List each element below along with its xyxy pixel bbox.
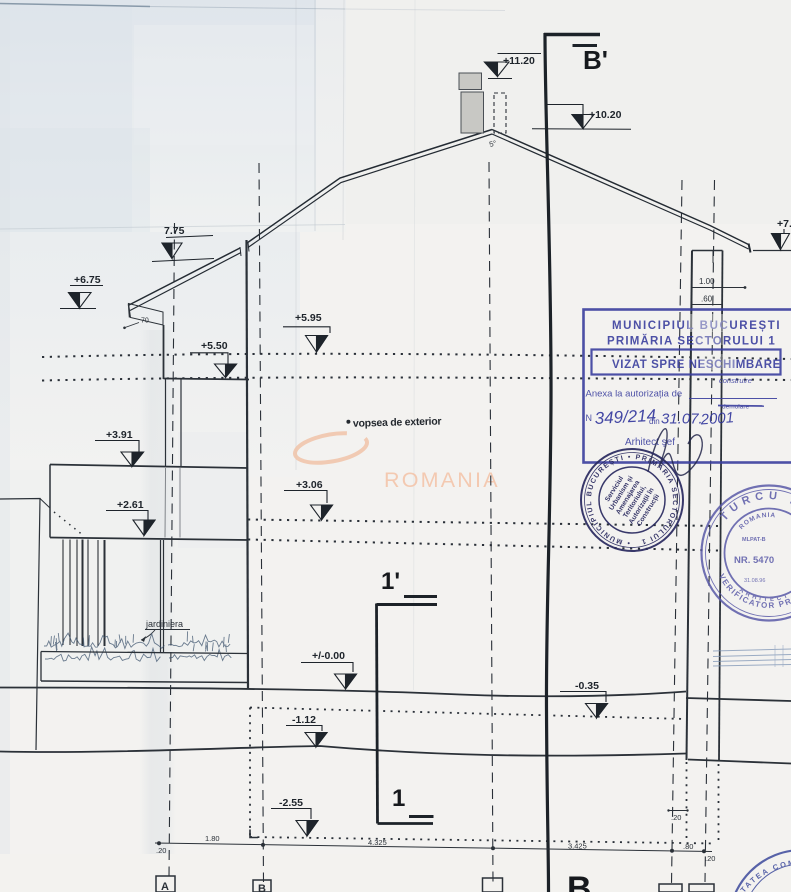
svg-text:B: B: [567, 870, 592, 892]
svg-text:Arhitect şef: Arhitect şef: [625, 437, 675, 448]
svg-text:-0.35: -0.35: [575, 680, 599, 692]
svg-text:.20: .20: [671, 813, 681, 822]
svg-text:vopsea de exterior: vopsea de exterior: [353, 415, 442, 429]
svg-text:N: N: [586, 413, 593, 423]
svg-text:.20: .20: [156, 846, 166, 855]
svg-text:B': B': [583, 45, 608, 75]
svg-text:70: 70: [141, 318, 149, 325]
svg-text:MLPAT-B: MLPAT-B: [742, 537, 766, 543]
svg-text:7.75: 7.75: [164, 225, 185, 237]
svg-text:2001: 2001: [699, 409, 734, 428]
svg-text:VIZAT SPRE NESCHIMBARE: VIZAT SPRE NESCHIMBARE: [612, 359, 781, 371]
svg-text:+10.20: +10.20: [589, 109, 622, 121]
svg-text:3.425: 3.425: [568, 842, 587, 851]
svg-text:1: 1: [392, 785, 405, 812]
svg-text:PRIMĂRIA SECTORULUI 1: PRIMĂRIA SECTORULUI 1: [607, 335, 776, 348]
svg-text:.80: .80: [683, 842, 693, 851]
svg-text:.60: .60: [701, 295, 713, 304]
svg-text:+6.75: +6.75: [74, 274, 101, 286]
svg-text:+5.95: +5.95: [295, 312, 322, 324]
svg-text:A: A: [161, 881, 169, 892]
svg-text:NR. 5470: NR. 5470: [734, 555, 774, 566]
svg-text:+11.20: +11.20: [503, 55, 535, 67]
svg-text:349/214: 349/214: [594, 406, 656, 428]
svg-text:+7.45: +7.45: [777, 218, 791, 230]
svg-text:+3.06: +3.06: [296, 479, 323, 491]
svg-text:B: B: [258, 883, 266, 892]
svg-text:1.00: 1.00: [699, 277, 715, 286]
svg-text:1.80: 1.80: [205, 834, 220, 843]
svg-text:+5.50: +5.50: [201, 340, 228, 352]
svg-text:-1.12: -1.12: [292, 714, 316, 726]
svg-text:4.325: 4.325: [368, 838, 387, 847]
svg-text:31.07.: 31.07.: [661, 411, 703, 428]
svg-text:ROMANIA: ROMANIA: [384, 468, 500, 492]
svg-text:-2.55: -2.55: [279, 797, 303, 809]
svg-text:construire: construire: [719, 376, 752, 385]
svg-text:+/-0.00: +/-0.00: [312, 650, 345, 662]
svg-text:+3.91: +3.91: [106, 429, 133, 441]
svg-text:+2.61: +2.61: [117, 499, 144, 511]
svg-text:1': 1': [381, 568, 400, 595]
svg-text:Anexa la autorizația de: Anexa la autorizația de: [586, 389, 683, 400]
svg-text:31.08.96: 31.08.96: [744, 578, 765, 584]
svg-text:.20: .20: [705, 854, 715, 863]
svg-text:jardiniera: jardiniera: [145, 619, 183, 629]
svg-text:din: din: [649, 417, 660, 426]
